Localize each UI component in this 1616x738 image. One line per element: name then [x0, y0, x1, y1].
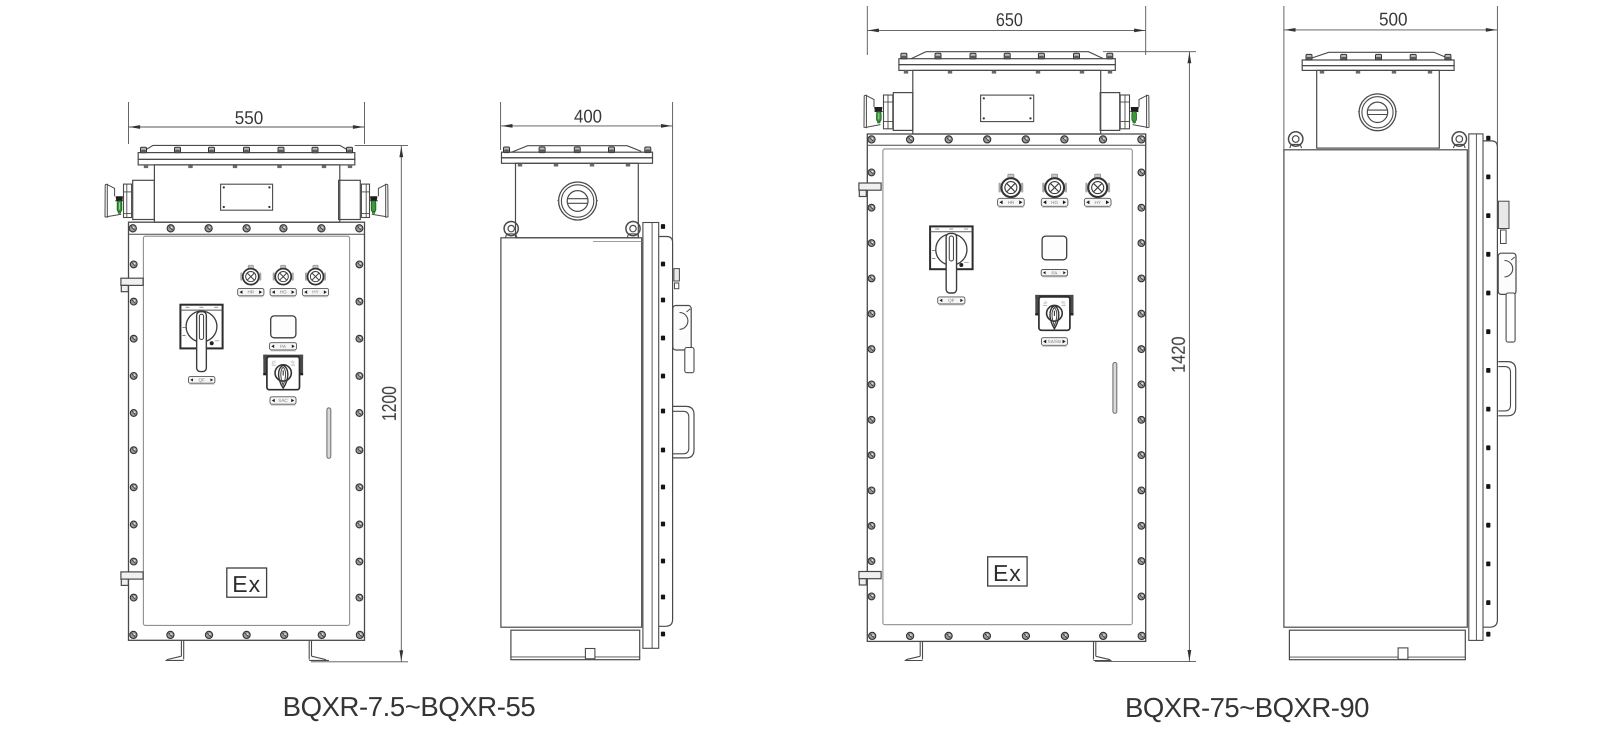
svg-text:HY: HY — [1095, 200, 1101, 205]
svg-text:QF: QF — [948, 298, 955, 303]
svg-text:BQXR-75~BQXR-90: BQXR-75~BQXR-90 — [1125, 692, 1369, 723]
svg-text:650: 650 — [996, 9, 1023, 30]
svg-text:PA: PA — [280, 344, 287, 349]
svg-text:1420: 1420 — [1169, 336, 1190, 373]
svg-text:1200: 1200 — [379, 386, 401, 421]
svg-text:HG: HG — [1051, 200, 1058, 205]
svg-text:SA/SB: SA/SB — [1048, 339, 1062, 344]
svg-text:500: 500 — [1379, 8, 1408, 29]
svg-text:Ex: Ex — [993, 560, 1022, 586]
svg-text:HG: HG — [280, 290, 287, 295]
svg-text:HR: HR — [247, 290, 254, 295]
svg-text:BQXR-7.5~BQXR-55: BQXR-7.5~BQXR-55 — [283, 691, 536, 722]
svg-text:PA: PA — [1052, 270, 1059, 275]
svg-text:550: 550 — [235, 107, 264, 128]
svg-text:QF: QF — [199, 377, 206, 382]
svg-text:SAC: SAC — [278, 398, 288, 403]
svg-text:Ex: Ex — [232, 571, 261, 597]
svg-text:HY: HY — [312, 290, 318, 295]
svg-text:400: 400 — [574, 106, 602, 127]
svg-text:HR: HR — [1008, 200, 1015, 205]
